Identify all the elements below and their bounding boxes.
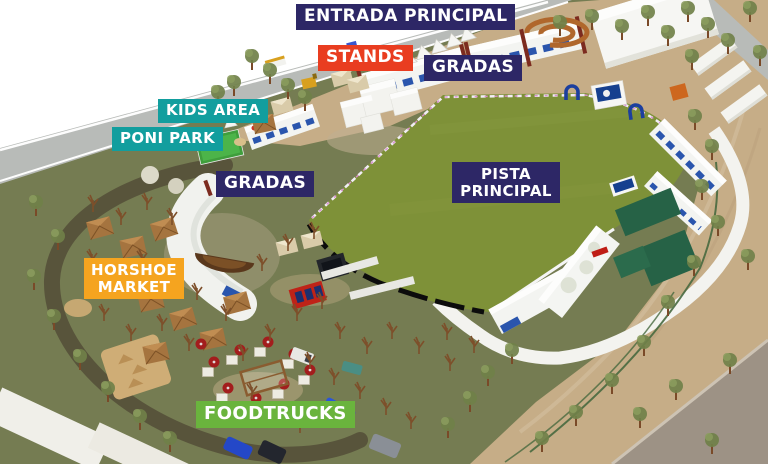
label-horshoe-market: HORSHOE MARKET [84, 258, 184, 299]
label-foodtrucks: FOODTRUCKS [196, 401, 355, 428]
label-pista-principal: PISTA PRINCIPAL [452, 162, 560, 203]
label-gradas-north: GRADAS [424, 55, 522, 81]
venue-map: ENTRADA PRINCIPAL STANDS GRADAS KIDS ARE… [0, 0, 768, 464]
label-stands: STANDS [318, 45, 413, 71]
label-kids-area: KIDS AREA [158, 99, 268, 123]
label-poni-park: PONI PARK [112, 127, 223, 151]
label-gradas-west: GRADAS [216, 171, 314, 197]
label-entrada-principal: ENTRADA PRINCIPAL [296, 4, 515, 30]
